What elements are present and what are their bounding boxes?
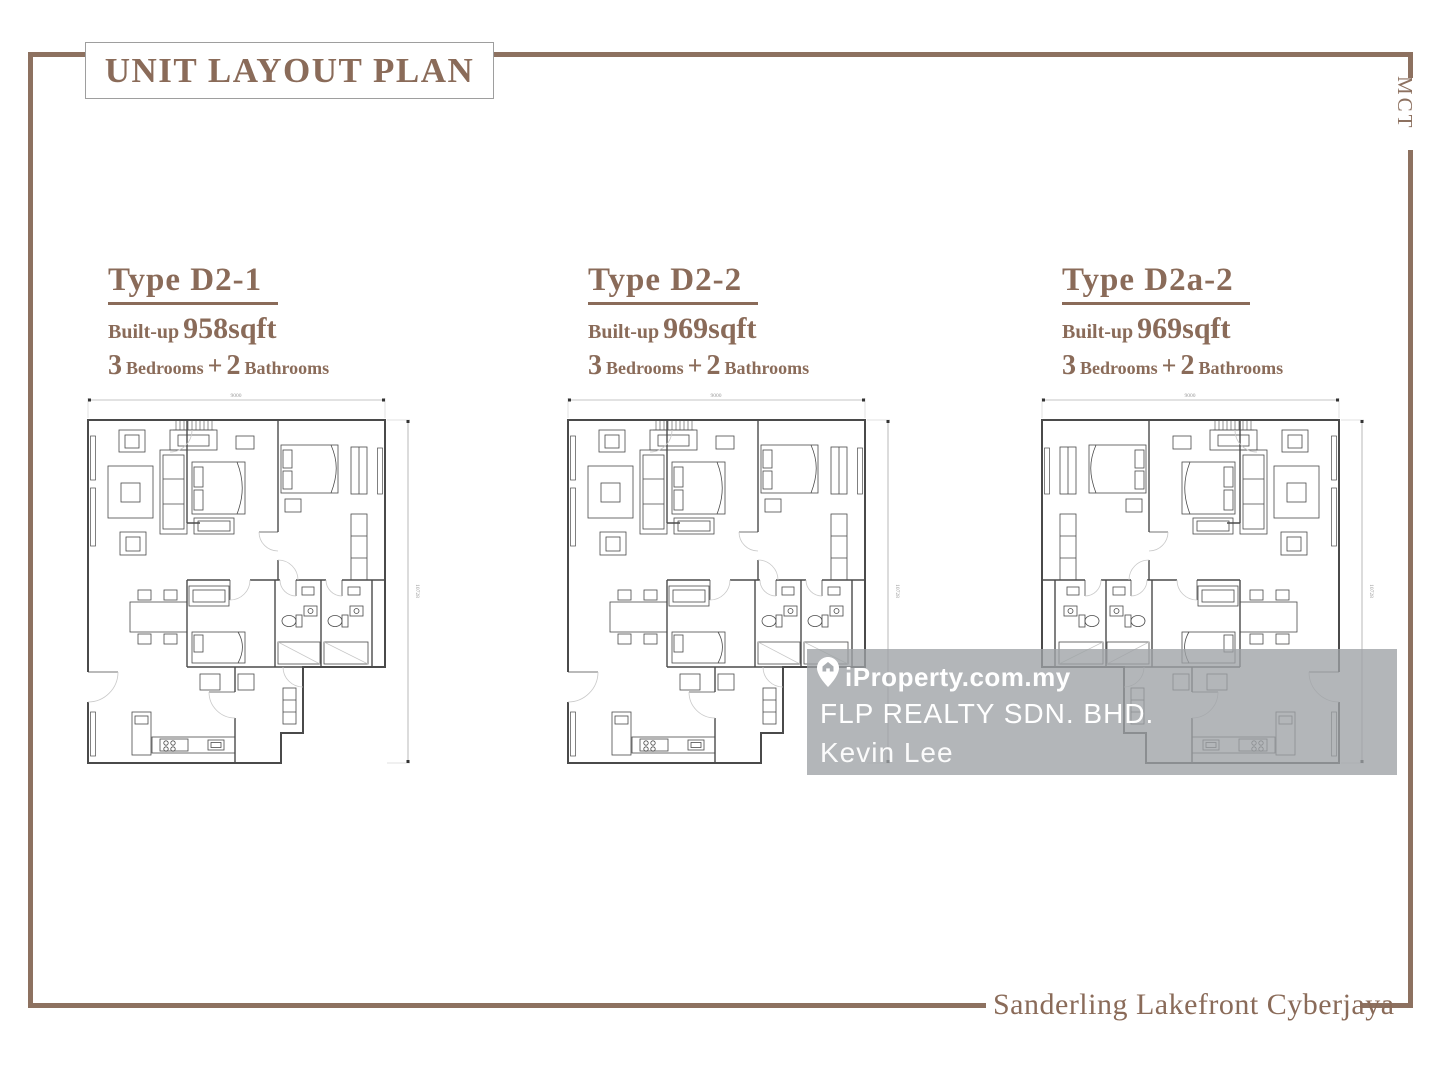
plus-sign: + bbox=[688, 351, 703, 380]
bedroom-label: Bedrooms bbox=[1080, 358, 1158, 378]
bedroom-label: Bedrooms bbox=[126, 358, 204, 378]
dimension-width-label: 9000 bbox=[231, 393, 242, 399]
watermark: iProperty.com.my FLP REALTY SDN. BHD. Ke… bbox=[807, 649, 1397, 775]
bathroom-count: 2 bbox=[227, 350, 241, 381]
unit-header: Type D2-1 Built-up 958sqft 3 Bedrooms + … bbox=[108, 262, 433, 382]
built-up-value: 969sqft bbox=[663, 312, 756, 345]
dimension-height-label: 10728 bbox=[1368, 584, 1374, 598]
developer-brand-vertical: MCT bbox=[1392, 76, 1417, 131]
bedroom-count: 3 bbox=[108, 350, 122, 381]
watermark-agency: FLP REALTY SDN. BHD. bbox=[820, 698, 1154, 730]
dimension-width-label: 9000 bbox=[1185, 393, 1196, 399]
built-up-line: Built-up 969sqft bbox=[588, 312, 913, 346]
plus-sign: + bbox=[1162, 351, 1177, 380]
unit-type-label: Type D2a-2 bbox=[1062, 262, 1250, 305]
frame-right-border bbox=[1408, 150, 1413, 1008]
unit-card-d2-1: Type D2-1 Built-up 958sqft 3 Bedrooms + … bbox=[88, 262, 433, 382]
watermark-agent: Kevin Lee bbox=[820, 737, 954, 769]
unit-type-label: Type D2-1 bbox=[108, 262, 278, 305]
project-name: Sanderling Lakefront Cyberjaya bbox=[993, 988, 1395, 1022]
bathroom-label: Bathrooms bbox=[245, 358, 330, 378]
frame-right-top-stub bbox=[1408, 52, 1413, 78]
page: UNIT LAYOUT PLAN MCT Type D2-1 Built-up … bbox=[0, 0, 1440, 1080]
rooms-line: 3 Bedrooms + 2 Bathrooms bbox=[108, 350, 433, 382]
unit-card-d2-2: Type D2-2 Built-up 969sqft 3 Bedrooms + … bbox=[568, 262, 913, 382]
unit-type-label: Type D2-2 bbox=[588, 262, 758, 305]
dimension-width-label: 9000 bbox=[711, 393, 722, 399]
bathroom-count: 2 bbox=[1181, 350, 1195, 381]
built-up-value: 969sqft bbox=[1137, 312, 1230, 345]
plus-sign: + bbox=[208, 351, 223, 380]
unit-header: Type D2-2 Built-up 969sqft 3 Bedrooms + … bbox=[588, 262, 913, 382]
built-up-label: Built-up bbox=[108, 321, 179, 343]
built-up-line: Built-up 958sqft bbox=[108, 312, 433, 346]
built-up-value: 958sqft bbox=[183, 312, 276, 345]
rooms-line: 3 Bedrooms + 2 Bathrooms bbox=[588, 350, 913, 382]
built-up-label: Built-up bbox=[1062, 321, 1133, 343]
page-title: UNIT LAYOUT PLAN bbox=[105, 51, 475, 91]
watermark-portal: iProperty.com.my bbox=[845, 662, 1071, 693]
frame-bottom-border bbox=[28, 1003, 986, 1008]
rooms-line: 3 Bedrooms + 2 Bathrooms bbox=[1062, 350, 1387, 382]
bathroom-label: Bathrooms bbox=[725, 358, 810, 378]
page-title-box: UNIT LAYOUT PLAN bbox=[85, 42, 494, 99]
unit-card-d2a-2: Type D2a-2 Built-up 969sqft 3 Bedrooms +… bbox=[1042, 262, 1387, 382]
location-pin-icon bbox=[817, 657, 839, 687]
bathroom-count: 2 bbox=[707, 350, 721, 381]
dimension-height-label: 10728 bbox=[414, 584, 420, 598]
bedroom-count: 3 bbox=[588, 350, 602, 381]
built-up-label: Built-up bbox=[588, 321, 659, 343]
floor-plan-d2-1: 9000 10728 bbox=[88, 392, 423, 767]
frame-left-border bbox=[28, 52, 33, 1008]
bedroom-count: 3 bbox=[1062, 350, 1076, 381]
dimension-height-label: 10728 bbox=[894, 584, 900, 598]
unit-header: Type D2a-2 Built-up 969sqft 3 Bedrooms +… bbox=[1062, 262, 1387, 382]
bedroom-label: Bedrooms bbox=[606, 358, 684, 378]
built-up-line: Built-up 969sqft bbox=[1062, 312, 1387, 346]
bathroom-label: Bathrooms bbox=[1199, 358, 1284, 378]
